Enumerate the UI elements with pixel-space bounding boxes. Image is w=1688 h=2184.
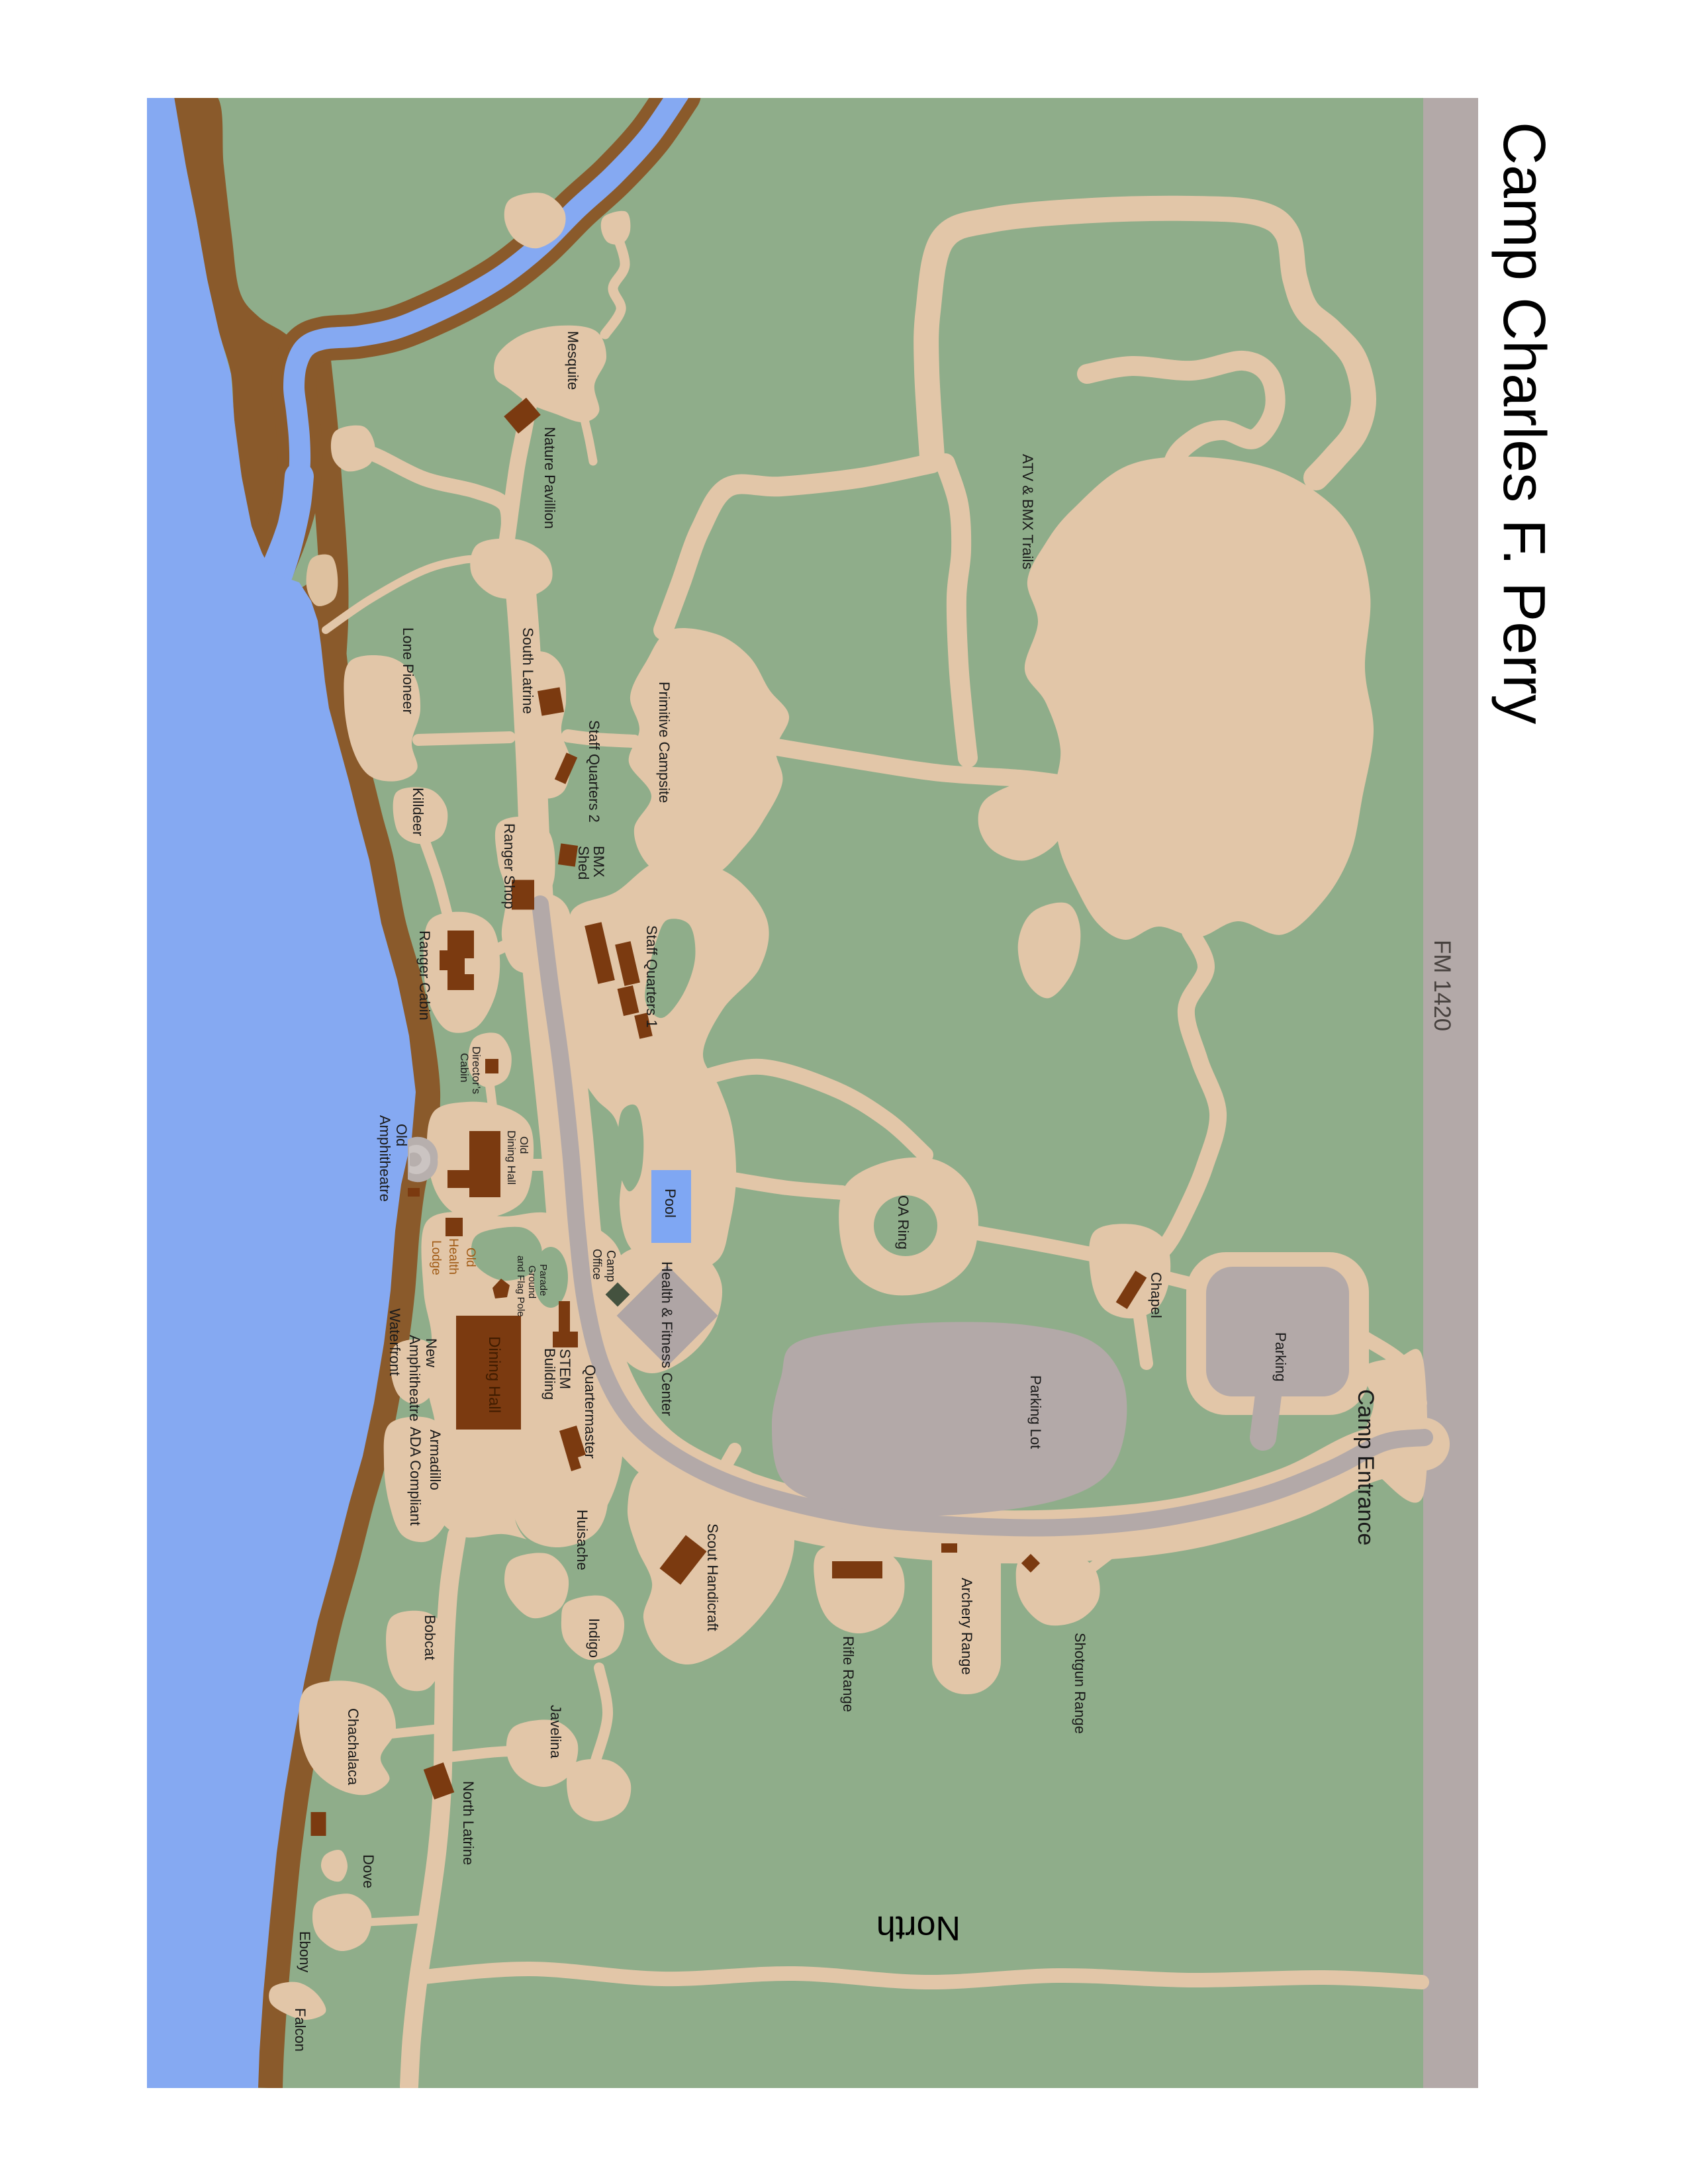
svg-text:Old: Old	[518, 1136, 530, 1154]
svg-text:Ground: Ground	[526, 1265, 538, 1298]
svg-text:Primitive Campsite: Primitive Campsite	[656, 682, 673, 803]
svg-text:ADA Compliant: ADA Compliant	[407, 1427, 424, 1525]
svg-text:Old: Old	[463, 1248, 477, 1267]
svg-text:Mesquite: Mesquite	[565, 331, 581, 390]
svg-text:Building: Building	[541, 1348, 558, 1400]
svg-text:Falcon: Falcon	[292, 2008, 308, 2052]
svg-text:Dining Hall: Dining Hall	[485, 1336, 503, 1413]
svg-text:Killdeer: Killdeer	[410, 788, 426, 836]
svg-text:Bobcat: Bobcat	[422, 1615, 438, 1661]
svg-text:OA Ring: OA Ring	[895, 1195, 912, 1250]
svg-text:Health & Fitness Center: Health & Fitness Center	[659, 1261, 675, 1416]
svg-text:ATV & BMX Trails: ATV & BMX Trails	[1019, 454, 1036, 569]
svg-text:North: North	[876, 1909, 961, 1947]
svg-text:Javelina: Javelina	[547, 1705, 564, 1758]
svg-text:Ranger Shop: Ranger Shop	[501, 823, 518, 909]
svg-text:Chachalaca: Chachalaca	[345, 1708, 361, 1786]
svg-text:Chapel: Chapel	[1148, 1272, 1164, 1318]
svg-text:Staff Quarters 2: Staff Quarters 2	[586, 720, 602, 823]
svg-text:Amphitheatre: Amphitheatre	[406, 1335, 423, 1422]
svg-text:Old: Old	[393, 1124, 410, 1146]
svg-text:Dove: Dove	[360, 1854, 377, 1888]
svg-text:Waterfront: Waterfront	[387, 1308, 403, 1376]
svg-text:Shotgun Range: Shotgun Range	[1072, 1633, 1088, 1734]
svg-text:Parking: Parking	[1272, 1332, 1289, 1382]
svg-text:Quartermaster: Quartermaster	[582, 1365, 598, 1459]
svg-text:Pool: Pool	[662, 1189, 679, 1218]
svg-text:Archery Range: Archery Range	[959, 1578, 975, 1675]
svg-text:Dining Hall: Dining Hall	[505, 1130, 518, 1185]
svg-text:Armadillo: Armadillo	[427, 1430, 444, 1490]
svg-text:Scout Handicraft: Scout Handicraft	[704, 1524, 721, 1631]
svg-text:Health: Health	[446, 1238, 460, 1275]
svg-text:and Flag Pole: and Flag Pole	[515, 1255, 526, 1317]
svg-text:Lodge: Lodge	[429, 1240, 443, 1275]
svg-text:BMX: BMX	[590, 846, 607, 878]
svg-text:Office: Office	[590, 1249, 604, 1280]
svg-text:Ranger Cabin: Ranger Cabin	[416, 931, 433, 1021]
svg-text:Indigo: Indigo	[586, 1618, 602, 1658]
svg-text:Nature Pavillion: Nature Pavillion	[541, 427, 558, 529]
svg-text:Director’s: Director’s	[470, 1046, 483, 1094]
svg-text:Cabin: Cabin	[458, 1053, 471, 1082]
svg-text:Lone Pioneer: Lone Pioneer	[400, 627, 416, 714]
svg-text:Ebony: Ebony	[297, 1931, 313, 1972]
svg-text:North Latrine: North Latrine	[460, 1781, 477, 1865]
svg-text:New: New	[423, 1338, 440, 1367]
svg-text:Parking Lot: Parking Lot	[1027, 1375, 1044, 1449]
svg-text:Amphitheatre: Amphitheatre	[377, 1115, 393, 1202]
svg-text:Shed: Shed	[575, 846, 592, 880]
svg-text:Rifle Range: Rifle Range	[840, 1636, 857, 1712]
svg-text:FM 1420: FM 1420	[1429, 940, 1455, 1031]
svg-text:Camp Entrance: Camp Entrance	[1353, 1389, 1378, 1545]
svg-text:Camp Charles F. Perry: Camp Charles F. Perry	[1491, 122, 1557, 724]
svg-text:South Latrine: South Latrine	[520, 627, 536, 714]
svg-text:Camp: Camp	[604, 1250, 618, 1282]
svg-text:STEM: STEM	[557, 1349, 573, 1389]
svg-text:Staff Quarters 1: Staff Quarters 1	[643, 925, 660, 1028]
svg-text:Huisache: Huisache	[574, 1510, 590, 1570]
svg-text:Parade: Parade	[538, 1264, 549, 1296]
